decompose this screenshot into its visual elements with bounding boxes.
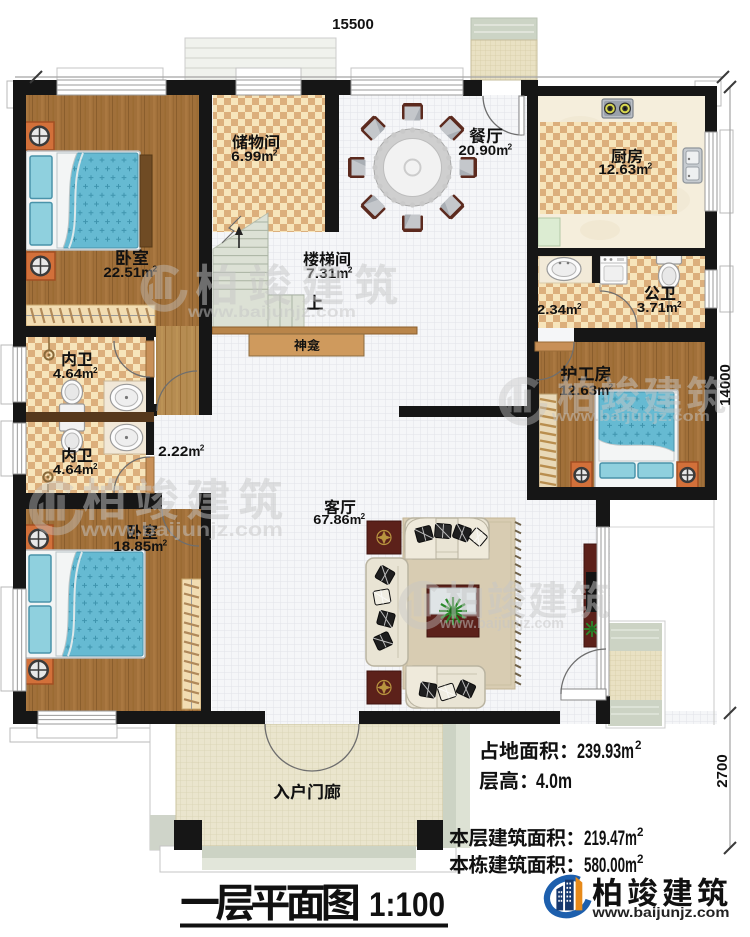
- svg-text:www.baijunjz.com: www.baijunjz.com: [439, 615, 564, 632]
- svg-text:www.baijunjz.com: www.baijunjz.com: [80, 520, 283, 541]
- svg-text:2: 2: [361, 512, 366, 521]
- svg-text:2: 2: [577, 302, 582, 311]
- svg-text:2700: 2700: [714, 754, 731, 787]
- svg-text:m: m: [496, 143, 508, 158]
- svg-text:m: m: [666, 300, 678, 315]
- svg-text:m: m: [188, 444, 200, 459]
- svg-text:2: 2: [200, 443, 205, 453]
- svg-text:m: m: [566, 302, 578, 317]
- svg-text:67.86: 67.86: [313, 512, 349, 527]
- svg-text:2.34: 2.34: [537, 302, 567, 317]
- svg-text:m: m: [82, 366, 94, 381]
- svg-text:580.00m: 580.00m: [584, 854, 637, 877]
- svg-text:2: 2: [273, 148, 278, 158]
- svg-text:12.63: 12.63: [598, 162, 636, 177]
- svg-text:219.47m: 219.47m: [584, 827, 637, 850]
- svg-text:m: m: [350, 512, 362, 527]
- svg-text:15500: 15500: [332, 16, 374, 33]
- svg-text:20.90: 20.90: [458, 143, 496, 158]
- svg-text:6.99: 6.99: [231, 149, 261, 164]
- svg-text:2.22: 2.22: [158, 444, 188, 459]
- svg-text:m: m: [151, 539, 163, 554]
- svg-text:m: m: [261, 149, 273, 164]
- svg-text:1:100: 1:100: [369, 886, 445, 924]
- svg-text:18.85: 18.85: [113, 539, 151, 554]
- svg-text:2: 2: [93, 366, 98, 375]
- svg-text:2: 2: [648, 161, 653, 171]
- svg-text:3.71: 3.71: [637, 300, 666, 315]
- svg-text:2: 2: [637, 853, 643, 866]
- svg-text:4.64: 4.64: [53, 462, 83, 477]
- svg-text:2: 2: [348, 265, 353, 275]
- svg-text:4.0m: 4.0m: [536, 770, 572, 793]
- svg-text:239.93m: 239.93m: [577, 740, 634, 763]
- svg-text:www.baijunjz.com: www.baijunjz.com: [591, 904, 729, 920]
- svg-text:m: m: [82, 462, 94, 477]
- svg-text:2: 2: [508, 142, 513, 152]
- svg-text:2: 2: [635, 739, 641, 752]
- svg-text:www.baijunjz.com: www.baijunjz.com: [187, 304, 356, 321]
- svg-text:m: m: [636, 162, 648, 177]
- svg-text:www.baijunjz.com: www.baijunjz.com: [551, 408, 710, 425]
- svg-text:2: 2: [93, 462, 98, 471]
- svg-text:4.64: 4.64: [53, 366, 83, 381]
- svg-text:2: 2: [677, 300, 682, 309]
- svg-text:22.51: 22.51: [103, 265, 141, 280]
- svg-text:2: 2: [637, 826, 643, 839]
